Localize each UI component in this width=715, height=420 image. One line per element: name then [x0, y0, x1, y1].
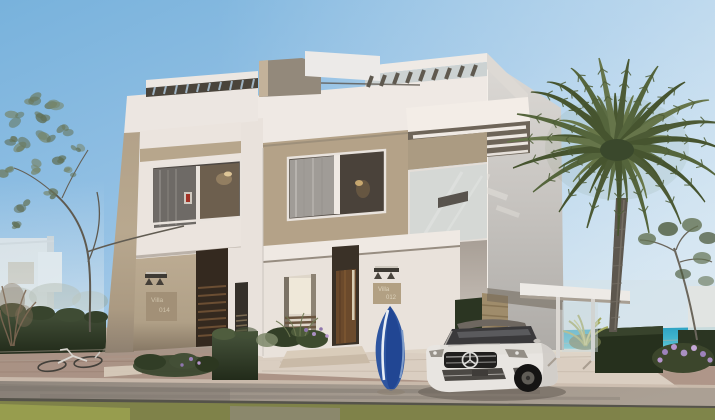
svg-text:014: 014 — [159, 307, 170, 314]
svg-text:012: 012 — [386, 295, 397, 301]
svg-text:Villa: Villa — [378, 287, 390, 293]
svg-text:Villa: Villa — [151, 297, 164, 304]
